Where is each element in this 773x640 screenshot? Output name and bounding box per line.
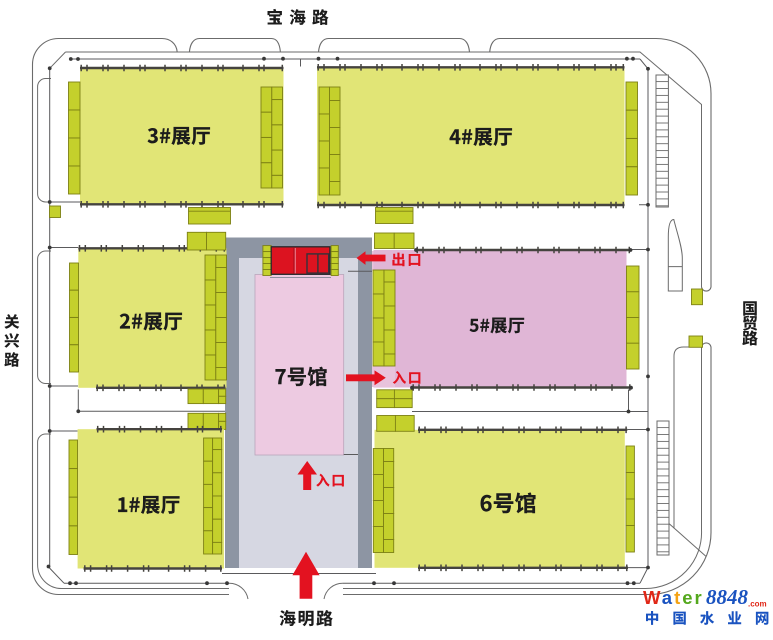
svg-text:8848: 8848 <box>706 585 749 609</box>
svg-text:.com: .com <box>748 600 767 609</box>
svg-text:Water: Water <box>643 587 704 608</box>
